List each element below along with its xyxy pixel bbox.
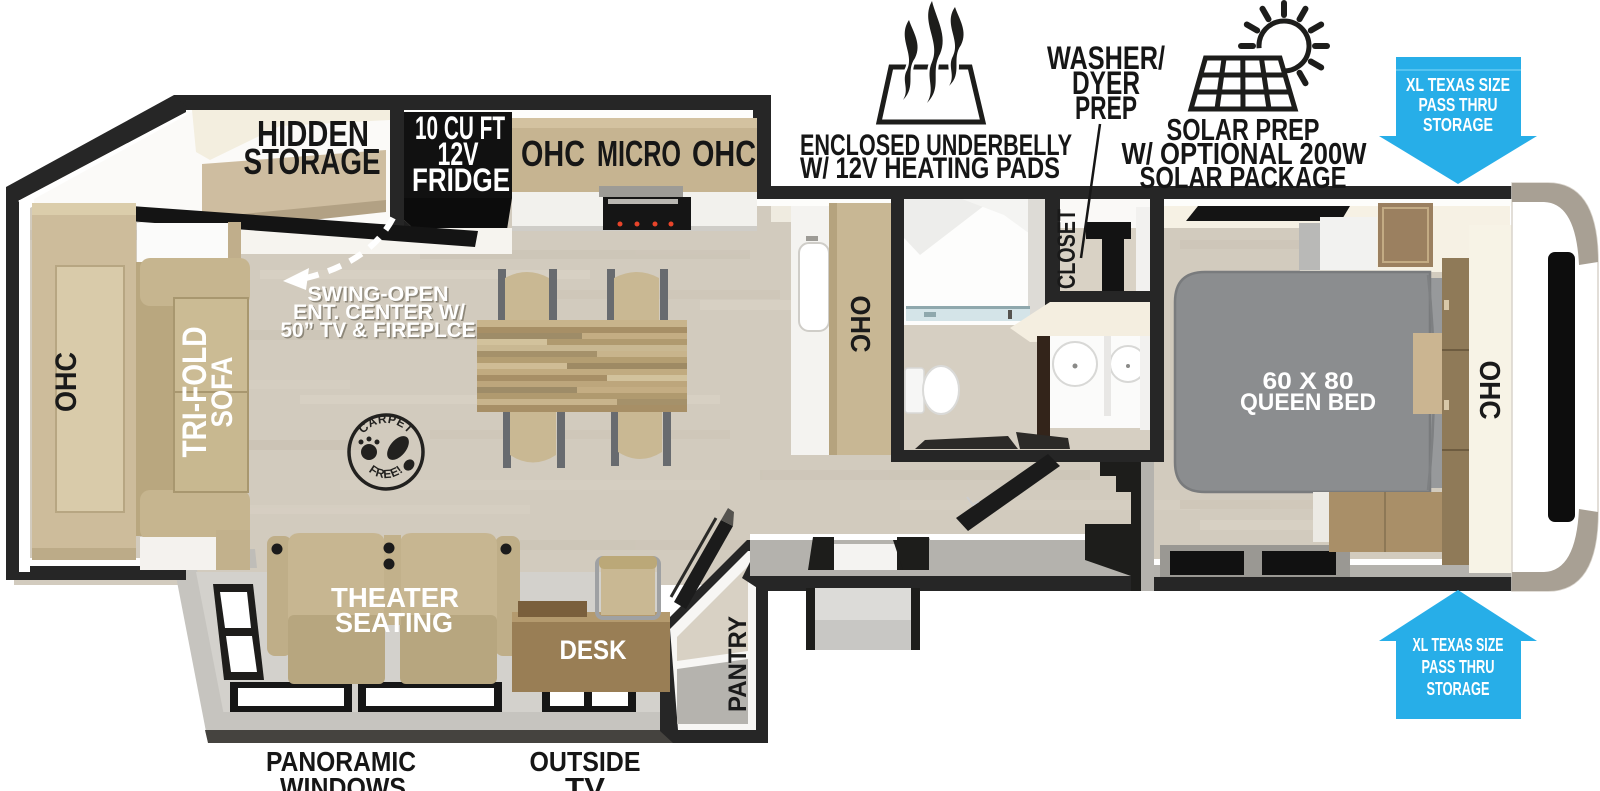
svg-text:TV: TV [565, 772, 605, 791]
svg-text:STORAGE: STORAGE [1423, 115, 1493, 135]
svg-text:OHC: OHC [692, 133, 756, 174]
svg-text:XL TEXAS SIZE: XL TEXAS SIZE [1406, 75, 1510, 95]
svg-text:STORAGE: STORAGE [1427, 679, 1490, 699]
svg-text:XL TEXAS SIZE: XL TEXAS SIZE [1413, 635, 1504, 655]
svg-text:PANTRY: PANTRY [724, 616, 752, 712]
svg-text:STORAGE: STORAGE [244, 141, 381, 182]
svg-text:CLOSET: CLOSET [1053, 209, 1081, 289]
svg-text:MICRO: MICRO [597, 133, 681, 174]
svg-text:PASS THRU: PASS THRU [1419, 95, 1498, 115]
svg-text:FRIDGE: FRIDGE [412, 162, 510, 198]
svg-text:SOLAR PACKAGE: SOLAR PACKAGE [1140, 160, 1347, 195]
svg-text:WINDOWS: WINDOWS [280, 772, 406, 791]
svg-text:DESK: DESK [560, 635, 627, 665]
svg-text:PREP: PREP [1075, 90, 1137, 126]
svg-text:QUEEN BED: QUEEN BED [1240, 389, 1376, 416]
svg-text:W/ 12V HEATING PADS: W/ 12V HEATING PADS [800, 152, 1060, 185]
svg-text:PASS THRU: PASS THRU [1422, 657, 1495, 677]
svg-text:50” TV & FIREPLCE: 50” TV & FIREPLCE [281, 319, 476, 342]
svg-text:SOFA: SOFA [206, 357, 239, 428]
svg-text:OHC: OHC [845, 296, 876, 353]
svg-text:OHC: OHC [50, 352, 83, 412]
svg-text:SEATING: SEATING [335, 607, 453, 638]
svg-text:OHC: OHC [1473, 361, 1505, 420]
svg-text:OHC: OHC [521, 133, 585, 174]
